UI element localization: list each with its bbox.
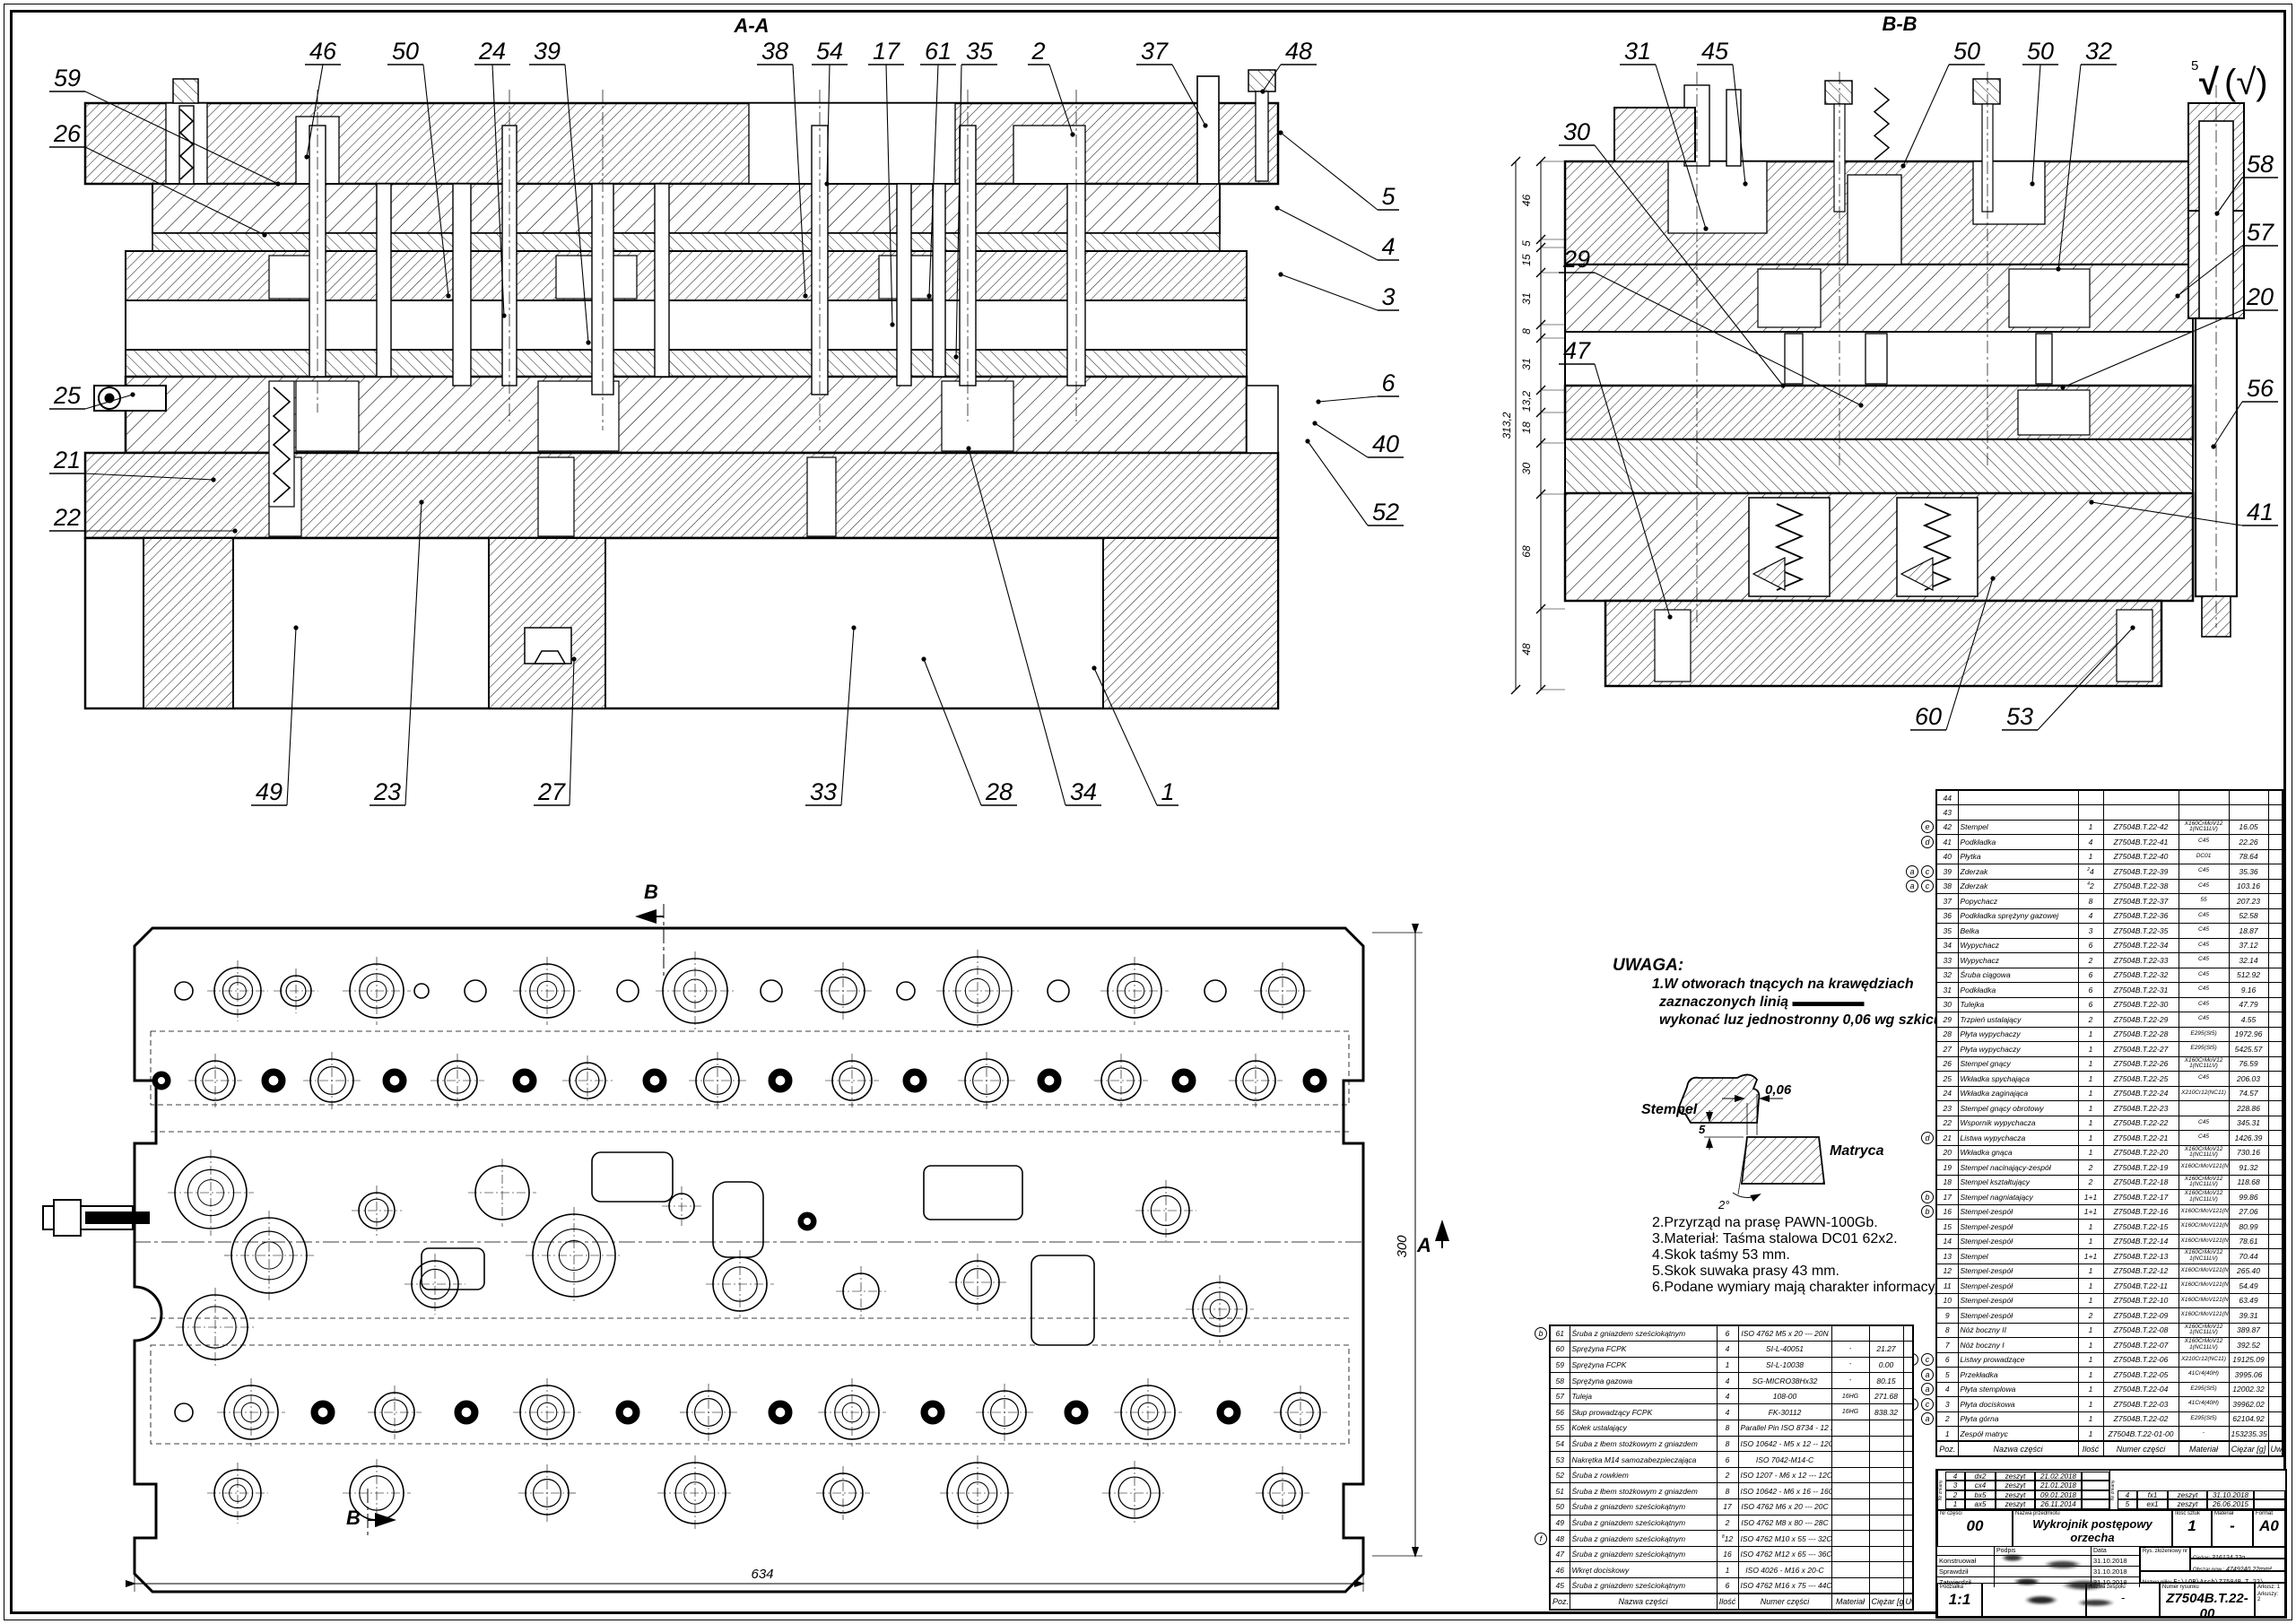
svg-text:15: 15	[1520, 254, 1533, 266]
callout: 46	[304, 38, 341, 160]
bom-row: 10Stempel-zespół1Z7504B.T.22-10X160CrMoV…	[1936, 1293, 2283, 1308]
hole	[940, 1455, 1015, 1531]
svg-text:54: 54	[816, 38, 843, 65]
bb-dimension-chain: 465153183113,218306848313,2	[1500, 157, 1565, 694]
svg-text:6: 6	[1381, 369, 1396, 396]
svg-text:5: 5	[2191, 58, 2198, 74]
hole	[825, 1054, 879, 1107]
sheet-label: Arkusz:	[2257, 1585, 2275, 1590]
hole	[311, 1401, 335, 1424]
callout: 5	[1278, 130, 1399, 210]
callout: 21	[49, 447, 216, 482]
callout: 20	[2060, 283, 2278, 390]
bom-row: 39Zderzak24Z7504B.T.22-39C4535.36	[1936, 864, 2283, 880]
revision-row: 2bx5zeszyt09.01.2018	[1945, 1490, 2109, 1500]
svg-text:53: 53	[2006, 703, 2033, 730]
hole	[188, 1054, 242, 1107]
bom-row: 35Belka3Z7504B.T.22-35C4518.87	[1936, 924, 2283, 939]
callout: 47	[1559, 337, 1673, 620]
bom-row: 42Stempel1Z7504B.T.22-42X160CrMoV12 1(NC…	[1936, 820, 2283, 835]
bom-row: 61Śruba z gniazdem sześciokątnym6ISO 476…	[1550, 1325, 1913, 1342]
callout: 28	[921, 656, 1017, 805]
part-number-cell: Nr części 00	[1937, 1509, 2013, 1547]
bom-row: 23Stempel gnący obrotowy1Z7504B.T.22-232…	[1936, 1101, 2283, 1116]
hole	[1256, 1466, 1309, 1520]
hole	[1217, 1401, 1240, 1424]
svg-text:21: 21	[53, 447, 81, 473]
hole	[455, 1401, 478, 1424]
plan-dimensions: 634300BBA	[135, 881, 1442, 1592]
callout: 26	[49, 120, 267, 238]
callout: 27	[534, 656, 577, 805]
bom-row: 59Sprężyna FCPK1SI-L-10038-0.00	[1550, 1357, 1913, 1373]
bom-row: 36Podkładka sprężyny gazowej4Z7504B.T.22…	[1936, 908, 2283, 924]
hole	[656, 951, 735, 1030]
hole	[175, 1403, 193, 1421]
drawing-number-value: Z7504B.T.22-00	[2161, 1591, 2254, 1617]
callout: 50	[1900, 38, 1985, 169]
svg-text:40: 40	[1372, 430, 1399, 457]
hole	[562, 1055, 613, 1106]
callout: 24	[474, 38, 510, 318]
svg-text:20: 20	[2246, 283, 2274, 310]
callout: 35	[953, 38, 997, 360]
svg-text:38: 38	[761, 38, 788, 65]
bom-row: 45Śruba z gniazdem sześciokątnym6ISO 476…	[1550, 1578, 1913, 1594]
hole	[949, 1254, 1006, 1311]
svg-text:(√): (√)	[2224, 63, 2268, 102]
svg-text:5: 5	[1381, 183, 1396, 210]
drawing-number-label: Numer rysunku	[2161, 1584, 2254, 1591]
svg-text:23: 23	[373, 778, 401, 805]
sheets-value: 2	[2257, 1597, 2260, 1602]
revision-row: 5ex1zeszyt26.06.2015	[2118, 1499, 2285, 1509]
revision-row: 4fx1zeszyt31.10.2018	[2118, 1490, 2285, 1500]
sketch-matryca-label: Matryca	[1830, 1143, 1884, 1159]
callout: 38	[757, 38, 808, 299]
bom-row: 19Stempel nacinający-zespół2Z7504B.T.22-…	[1936, 1160, 2283, 1176]
svg-text:24: 24	[478, 38, 506, 65]
svg-text:56: 56	[2247, 375, 2274, 402]
sheet-value: 1	[2277, 1585, 2280, 1590]
callout: 59	[49, 65, 281, 187]
callout: 61	[920, 38, 956, 299]
hole	[769, 1401, 792, 1424]
bom-row: 51Śruba z łbem stożkowym z gniazdem8ISO …	[1550, 1483, 1913, 1499]
svg-text:29: 29	[1562, 246, 1590, 273]
hole	[616, 1401, 639, 1424]
bom-row: 8Nóż boczny II1Z7504B.T.22-08X160CrMoV12…	[1936, 1323, 2283, 1338]
hole	[175, 982, 193, 1000]
sketch-gap-value: 0,06	[1765, 1082, 1792, 1098]
svg-text:47: 47	[1563, 337, 1591, 364]
svg-text:60: 60	[1915, 703, 1942, 730]
callout: 53	[2002, 625, 2135, 730]
hole	[468, 1159, 536, 1227]
bom-row: 38Zderzak42Z7504B.T.22-38C45103.16	[1936, 879, 2283, 894]
hole	[526, 1207, 622, 1304]
surface-finish-symbol: 5 √ (√)	[2191, 58, 2268, 102]
svg-text:34: 34	[1070, 778, 1097, 805]
bom-row-mark: d	[1921, 836, 1934, 848]
sketch-stempel-label: Stempel	[1641, 1102, 1698, 1117]
svg-text:B: B	[644, 881, 658, 903]
bom-row: 56Słup prowadzący FCPK4FK-3011216HG838.3…	[1550, 1404, 1913, 1420]
bom-row: 12Stempel-zespół1Z7504B.T.22-12X160CrMoV…	[1936, 1264, 2283, 1279]
hole	[921, 1401, 944, 1424]
bom-row: 16Stempel-zespół1+1Z7504B.T.22-16X160CrM…	[1936, 1204, 2283, 1220]
bom-row-mark: c	[1921, 1398, 1934, 1411]
sheet-count-cell: Arkusz: 1 Arkuszy: 2	[2255, 1583, 2285, 1617]
hole	[1114, 1378, 1182, 1446]
svg-text:31: 31	[1520, 358, 1533, 369]
bom-row: 18Stempel kształtujący2Z7504B.T.22-18X16…	[1936, 1175, 2283, 1190]
sketch-angle-value: 2°	[1718, 1198, 1729, 1211]
hole	[1038, 1069, 1061, 1092]
callout: 40	[1312, 421, 1404, 457]
hole	[1065, 1401, 1088, 1424]
bom-row: 34Wypychacz6Z7504B.T.22-34C4537.12	[1936, 938, 2283, 953]
callout: 1	[1091, 665, 1178, 805]
callout: 48	[1260, 38, 1317, 94]
callout: 25	[49, 382, 135, 409]
callout: 33	[805, 625, 857, 805]
svg-text:33: 33	[810, 778, 837, 805]
hole	[274, 968, 318, 1013]
revision-row: 3cx4zeszyt21.01.2018	[1945, 1481, 2109, 1490]
bom-row: 43	[1936, 805, 2283, 821]
assembly-drawing-label: Rys. złożeniowy nr	[2141, 1548, 2189, 1555]
hole	[680, 1384, 737, 1441]
hole	[761, 980, 782, 1002]
callout: 3	[1278, 272, 1399, 310]
hole	[207, 1463, 268, 1524]
hole	[414, 984, 429, 998]
hole	[769, 1069, 792, 1092]
clearance-sketch: Stempel Matryca 0,06 5 2°	[1632, 1058, 1901, 1215]
callout: 29	[1559, 246, 1864, 408]
bom-row-mark: f	[1535, 1533, 1547, 1545]
svg-text:1: 1	[1161, 778, 1174, 805]
hole	[936, 950, 1019, 1032]
svg-text:30: 30	[1520, 463, 1533, 475]
drawing-sheet: A-A B-B 5 √ (√) 592646502439385417613523…	[0, 0, 2296, 1624]
bom-row: 52Śruba z rowkiem2ISO 1207 - M6 x 12 ---…	[1550, 1467, 1913, 1483]
svg-text:57: 57	[2247, 219, 2274, 246]
bom-row-mark: d	[1921, 1132, 1934, 1144]
bom-row: 3Płyta dociskowa1Z7504B.T.22-0341Cr4(40H…	[1936, 1397, 2283, 1412]
bom-row: 32Śruba ciągowa6Z7504B.T.22-32C45512.92	[1936, 968, 2283, 983]
hole	[1172, 1069, 1196, 1092]
hole	[617, 980, 639, 1002]
hole	[368, 1385, 422, 1439]
svg-text:31: 31	[1520, 292, 1533, 304]
bom-row: 27Płyta wypychaczy1Z7504B.T.22-27E295(St…	[1936, 1042, 2283, 1057]
area-cell: Obszar pow.:4749240.22mm²	[2190, 1559, 2285, 1571]
weight-cell: Ciężar:316124.22g	[2190, 1547, 2285, 1559]
svg-text:300: 300	[1395, 1235, 1410, 1258]
bom-row: 4Płyta stemplowa1Z7504B.T.22-04E295(St5)…	[1936, 1382, 2283, 1397]
svg-text:4: 4	[1381, 233, 1395, 260]
hole	[168, 1150, 254, 1236]
drawing-number-cell: Numer rysunku Z7504B.T.22-00	[2160, 1583, 2255, 1617]
svg-text:27: 27	[537, 778, 566, 805]
material-label: Materiał	[2213, 1510, 2252, 1517]
bom-row-mark: b	[1535, 1327, 1547, 1340]
svg-text:634: 634	[751, 1567, 773, 1582]
callout: 17	[868, 38, 904, 327]
hole	[816, 1466, 870, 1520]
bom-row: 7Nóż boczny I1Z7504B.T.22-07X160CrMoV12 …	[1936, 1338, 2283, 1353]
file-path-cell: Nazwa plikuE:\LOB\Arch\Z7504B.T.22\	[2140, 1571, 2285, 1583]
svg-text:26: 26	[53, 120, 82, 147]
hole	[518, 1464, 576, 1522]
bom-row: 46Wkręt dociskowy1ISO 4026 - M16 x 20-C	[1550, 1562, 1913, 1578]
section-bb-label: B-B	[1882, 13, 1917, 35]
callout: 31	[1620, 38, 1709, 231]
hole	[430, 1054, 484, 1107]
callout: 60	[1910, 576, 1996, 730]
svg-text:√: √	[2199, 63, 2220, 102]
svg-text:37: 37	[1141, 38, 1169, 65]
svg-text:50: 50	[1953, 38, 1980, 65]
callout: 49	[251, 625, 299, 805]
callout: 6	[1316, 369, 1399, 404]
qty-cell: Ilość sztuk 1	[2172, 1509, 2212, 1547]
revision-row: 4dx2zeszyt21.02.2018	[1945, 1472, 2109, 1481]
bom-row: 41Podkładka4Z7504B.T.22-41C4522.26	[1936, 835, 2283, 850]
svg-text:31: 31	[1624, 38, 1651, 65]
hole	[383, 1069, 406, 1092]
hole	[262, 1069, 285, 1092]
sheets-label: Arkuszy:	[2257, 1592, 2278, 1597]
bom-row-mark: c	[1921, 865, 1934, 878]
hole	[1303, 1069, 1326, 1092]
bom-row: 29Trzpień ustalający2Z7504B.T.22-29C454.…	[1936, 1012, 2283, 1028]
bom-row: 6Listwy prowadzące1Z7504B.T.22-06X210Cr1…	[1936, 1352, 2283, 1368]
callout: 34	[966, 446, 1101, 805]
svg-text:48: 48	[1285, 38, 1312, 65]
hole	[706, 1250, 774, 1318]
bom-row: 17Stempel nagniatający1+1Z7504B.T.22-17X…	[1936, 1190, 2283, 1205]
svg-text:17: 17	[873, 38, 900, 65]
part-number-value: 00	[1938, 1517, 2012, 1535]
hole	[814, 962, 872, 1020]
svg-text:30: 30	[1563, 118, 1590, 145]
svg-text:59: 59	[54, 65, 81, 91]
svg-text:5: 5	[1520, 240, 1533, 247]
svg-text:61: 61	[925, 38, 952, 65]
svg-text:35: 35	[966, 38, 994, 65]
bom-row-mark: a	[1906, 865, 1918, 878]
bom-row: 11Stempel-zespół1Z7504B.T.22-11X160CrMoV…	[1936, 1279, 2283, 1294]
bom-row: 22Wspornik wypychacza1Z7504B.T.22-22C453…	[1936, 1116, 2283, 1131]
bom-row: 1Zespół matryc1Z7504B.T.22-01-00-153235.…	[1936, 1427, 2283, 1442]
bom-row: 40Płytka1Z7504B.T.22-40DC0178.64	[1936, 849, 2283, 864]
format-label: Format	[2254, 1510, 2284, 1517]
hole	[798, 1212, 816, 1230]
hole	[643, 1069, 666, 1092]
hole	[689, 1052, 746, 1109]
svg-text:45: 45	[1701, 38, 1729, 65]
plan-holes	[152, 950, 1327, 1531]
revision-table: Nr zmiany4dx2zeszyt21.02.20183cx4zeszyt2…	[1937, 1471, 2285, 1511]
bom-row-mark: b	[1921, 1191, 1934, 1203]
svg-text:13,2: 13,2	[1520, 390, 1533, 412]
callout: 39	[529, 38, 591, 345]
hole	[352, 1185, 402, 1236]
bom-row: 9Stempel-zespół2Z7504B.T.22-09X160CrMoV1…	[1936, 1308, 2283, 1324]
callout: 41	[2089, 499, 2278, 525]
hole	[1205, 980, 1226, 1002]
bom-row: 2Płyta górna1Z7504B.T.22-02E295(St5)6210…	[1936, 1411, 2283, 1427]
callout: 23	[370, 499, 424, 805]
hole	[903, 1069, 926, 1092]
format-value: A0	[2254, 1517, 2284, 1535]
bom-row: 44	[1936, 790, 2283, 805]
svg-text:313,2: 313,2	[1500, 412, 1513, 439]
callout: 30	[1559, 118, 1786, 388]
sketch-depth-value: 5	[1699, 1123, 1706, 1136]
bom-row: 13Stempel1+1Z7504B.T.22-13X160CrMoV12 1(…	[1936, 1249, 2283, 1264]
hole	[224, 1211, 314, 1300]
bom-row: 47Śruba z gniazdem sześciokątnym16ISO 47…	[1550, 1546, 1913, 1562]
bom-row: 60Sprężyna FCPK4SI-L-40051-21.27	[1550, 1342, 1913, 1358]
hole	[836, 1266, 886, 1316]
hole	[662, 1186, 701, 1226]
svg-text:50: 50	[392, 38, 419, 65]
hole	[958, 1052, 1015, 1109]
callout: 50	[387, 38, 451, 299]
svg-text:B: B	[346, 1507, 361, 1529]
callout: 45	[1697, 38, 1748, 187]
hole	[404, 1254, 465, 1315]
svg-text:32: 32	[2085, 38, 2112, 65]
bom-row: 48Śruba z gniazdem sześciokątnym812ISO 4…	[1550, 1531, 1913, 1547]
bom-row: 26Stempel gnący1Z7504B.T.22-26X160CrMoV1…	[1936, 1056, 2283, 1072]
hole	[976, 1384, 1033, 1441]
svg-text:46: 46	[309, 38, 337, 65]
hole	[465, 980, 486, 1002]
bom-row: 5Przekładka1Z7504B.T.22-0541Cr4(40H)3995…	[1936, 1368, 2283, 1383]
svg-text:52: 52	[1372, 499, 1399, 525]
bom-row: 57Tuleja4108-0016HG271.68	[1550, 1388, 1913, 1404]
bom-row: 55Kołek ustalający8Parallel Pin ISO 8734…	[1550, 1420, 1913, 1437]
hole	[152, 1072, 170, 1090]
callout: 56	[2211, 375, 2278, 449]
hole	[343, 957, 411, 1025]
bom-row: 49Śruba z gniazdem sześciokątnym2ISO 476…	[1550, 1515, 1913, 1531]
hole	[1094, 1054, 1148, 1107]
scale-value: 1:1	[1938, 1591, 1981, 1609]
bom-header-row: Poz.Nazwa częściIlośćNumer częściMateria…	[1936, 1441, 2283, 1456]
svg-text:28: 28	[985, 778, 1013, 805]
hole	[513, 1378, 581, 1446]
svg-text:22: 22	[53, 504, 81, 531]
bom-row-mark: a	[1921, 1368, 1934, 1381]
hole	[657, 1455, 733, 1531]
bom-row: 30Tulejka6Z7504B.T.22-30C4547.79	[1936, 997, 2283, 1012]
hole	[513, 1069, 536, 1092]
hole	[818, 1378, 886, 1446]
svg-text:49: 49	[256, 778, 283, 805]
svg-text:48: 48	[1520, 643, 1533, 656]
hole	[176, 1288, 255, 1367]
bom-main-table: 444342Stempel1Z7504B.T.22-42X160CrMoV12 …	[1935, 789, 2283, 1457]
bom-row: 14Stempel-zespół1Z7504B.T.22-14X160CrMoV…	[1936, 1234, 2283, 1249]
bom-row: 58Sprężyna gazowa4SG-MICRO38Hx32-80.15	[1550, 1373, 1913, 1389]
scale-cell: Podziałka 1:1	[1937, 1583, 1982, 1617]
svg-text:58: 58	[2247, 151, 2274, 178]
callout: 54	[812, 38, 848, 187]
qty-value: 1	[2173, 1517, 2211, 1535]
hole	[1135, 1180, 1196, 1241]
approval-stamp	[1984, 1544, 2127, 1612]
callout: 32	[2056, 38, 2117, 272]
bom-row: 24Wkładka zaginająca1Z7504B.T.22-24X210C…	[1936, 1086, 2283, 1101]
bom-row: 53Nakrętka M14 samozabezpieczająca6ISO 7…	[1550, 1452, 1913, 1468]
bom-row: 15Stempel-zespół1Z7504B.T.22-15X160CrMoV…	[1936, 1220, 2283, 1235]
svg-text:8: 8	[1520, 328, 1533, 334]
hole	[897, 982, 915, 1000]
bom-row: 37Popychacz8Z7504B.T.22-3755207.23	[1936, 894, 2283, 909]
svg-text:2: 2	[1031, 38, 1045, 65]
svg-text:3: 3	[1381, 283, 1395, 310]
bom-row: 54Śruba z łbem stożkowym z gniazdem8ISO …	[1550, 1436, 1913, 1452]
svg-text:25: 25	[53, 382, 82, 409]
bom-header-row: Poz.Nazwa częściIlośćNumer częściMateria…	[1550, 1594, 1913, 1610]
part-name-cell: Nazwa przedmiotu Wykrojnik postępowy orz…	[2013, 1509, 2172, 1547]
svg-text:41: 41	[2247, 499, 2274, 525]
bom-row: 25Wkładka spychająca1Z7504B.T.22-25C4520…	[1936, 1072, 2283, 1087]
part-name-value: Wykrojnik postępowy orzecha	[2013, 1517, 2171, 1544]
hole	[1186, 1275, 1254, 1343]
format-cell: Format A0	[2253, 1509, 2285, 1547]
hole	[207, 960, 268, 1021]
part-name-label: Nazwa przedmiotu	[2013, 1510, 2171, 1517]
bom-row: 33Wypychacz2Z7504B.T.22-33C4532.14	[1936, 953, 2283, 968]
bom-row: 28Płyta wypychaczy1Z7504B.T.22-28E295(St…	[1936, 1027, 2283, 1042]
bom-row: 50Śruba z gniazdem sześciokątnym17ISO 47…	[1550, 1499, 1913, 1515]
section-aa-label: A-A	[733, 14, 769, 37]
scale-label: Podziałka	[1938, 1584, 1981, 1591]
callout: 2	[1028, 38, 1075, 137]
hole	[1274, 1385, 1327, 1439]
bom-row: 31Podkładka6Z7504B.T.22-31C459.16	[1936, 983, 2283, 998]
qty-label: Ilość sztuk	[2173, 1510, 2211, 1517]
svg-text:18: 18	[1520, 421, 1533, 434]
bom-std-table: 61Śruba z gniazdem sześciokątnym6ISO 476…	[1549, 1324, 1914, 1611]
callout: 58	[2214, 151, 2278, 216]
hole	[1100, 957, 1169, 1025]
svg-text:A: A	[1416, 1234, 1431, 1256]
bom-row: 20Wkładka gnąca1Z7504B.T.22-20X160CrMoV1…	[1936, 1145, 2283, 1160]
material-cell: Materiał -	[2212, 1509, 2253, 1547]
hole	[1229, 1054, 1283, 1107]
svg-text:68: 68	[1520, 545, 1533, 558]
material-value: -	[2213, 1517, 2252, 1535]
bom-row: 21Listwa wypychacza1Z7504B.T.22-21C45142…	[1936, 1131, 2283, 1146]
hole	[513, 957, 581, 1025]
svg-text:46: 46	[1520, 195, 1533, 207]
callout: 4	[1274, 205, 1399, 260]
revision-row: 1ax5zeszyt26.11.2014	[1945, 1499, 2109, 1509]
callout: 22	[49, 504, 238, 534]
hole	[1102, 1461, 1167, 1525]
hole	[1254, 962, 1311, 1020]
hole	[217, 1378, 285, 1446]
svg-text:50: 50	[2027, 38, 2054, 65]
